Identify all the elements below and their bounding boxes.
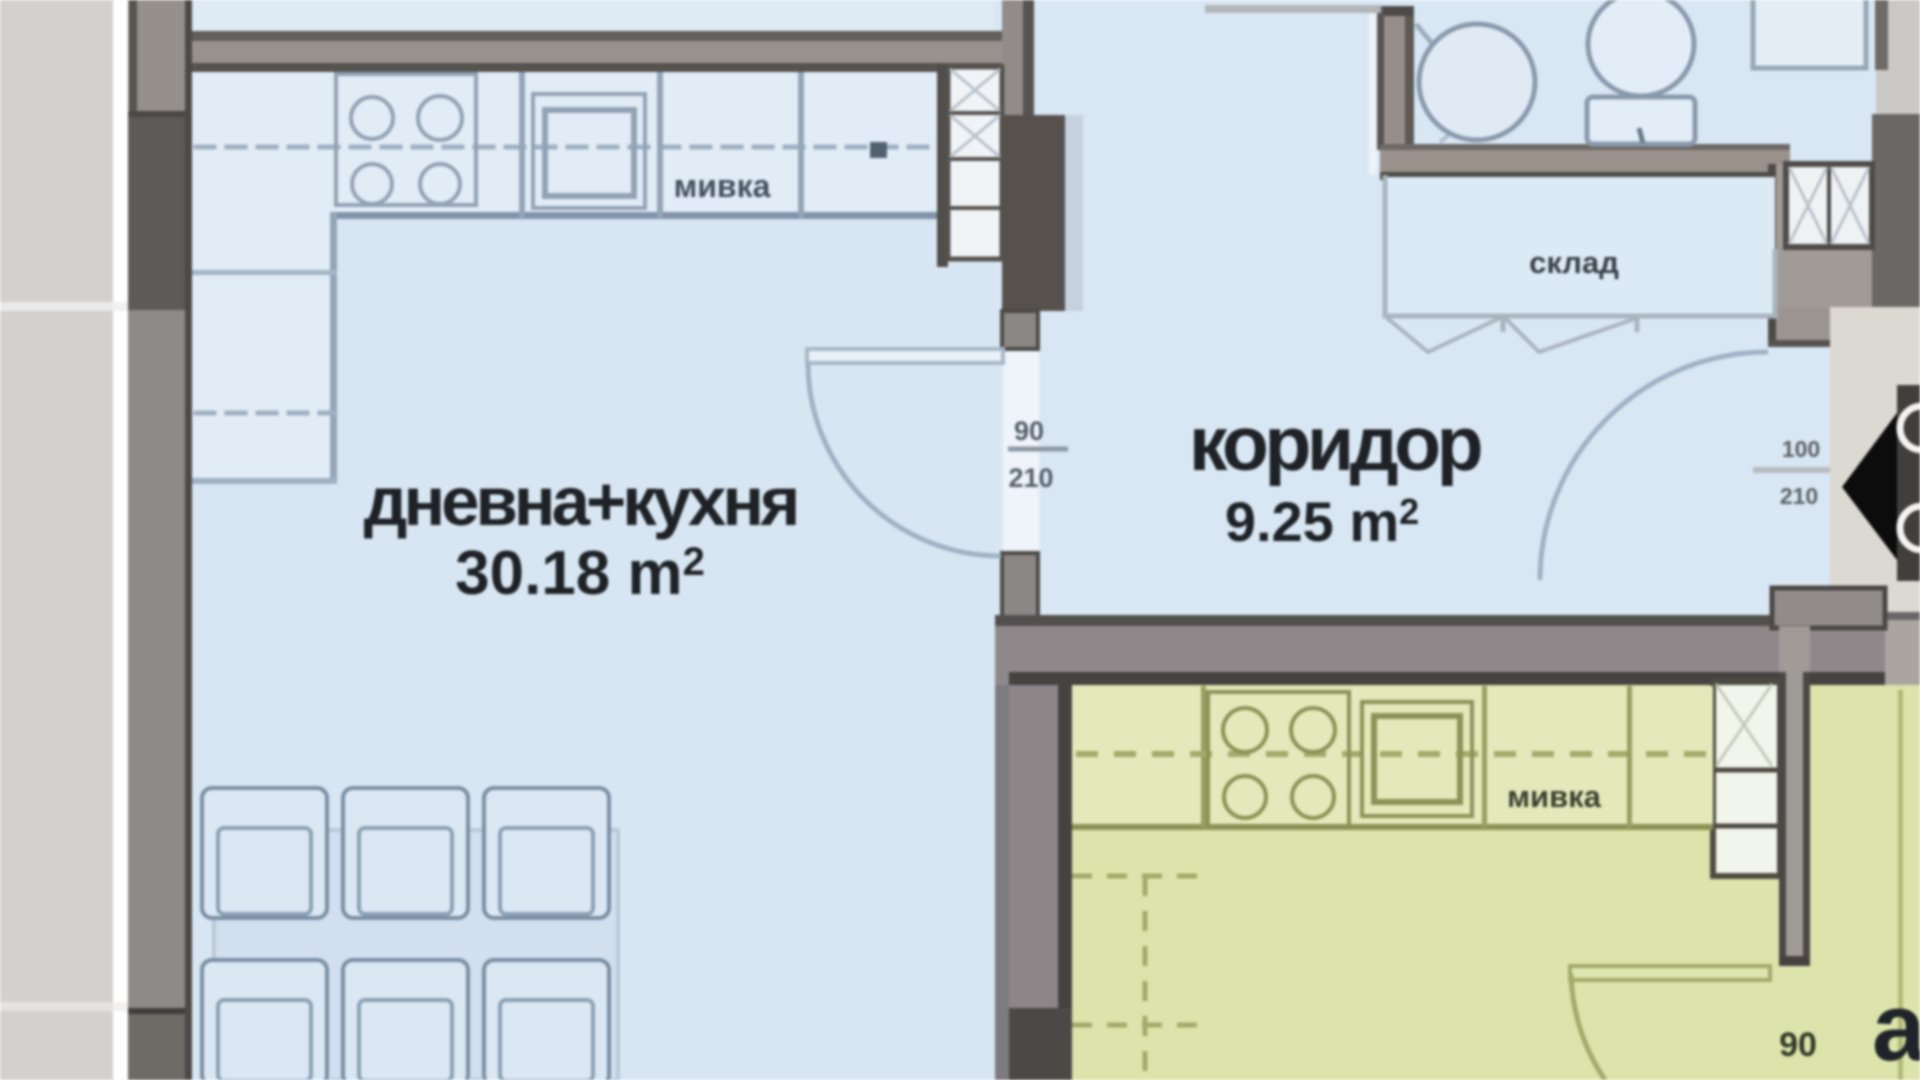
svg-text:мивка: мивка <box>674 168 771 204</box>
svg-text:210: 210 <box>1008 463 1053 493</box>
svg-text:9.25 m2: 9.25 m2 <box>1225 490 1419 553</box>
svg-text:100: 100 <box>1782 436 1820 462</box>
svg-text:210: 210 <box>1780 483 1818 509</box>
svg-text:коридор: коридор <box>1189 401 1481 487</box>
svg-text:30.18 m2: 30.18 m2 <box>455 539 705 608</box>
svg-text:дневна+кухня: дневна+кухня <box>364 463 797 540</box>
svg-text:90: 90 <box>1779 1026 1817 1064</box>
svg-text:склад: склад <box>1529 245 1619 280</box>
svg-text:мивка: мивка <box>1507 779 1602 814</box>
svg-text:90: 90 <box>1014 416 1044 446</box>
svg-text:а: а <box>1872 974 1920 1080</box>
